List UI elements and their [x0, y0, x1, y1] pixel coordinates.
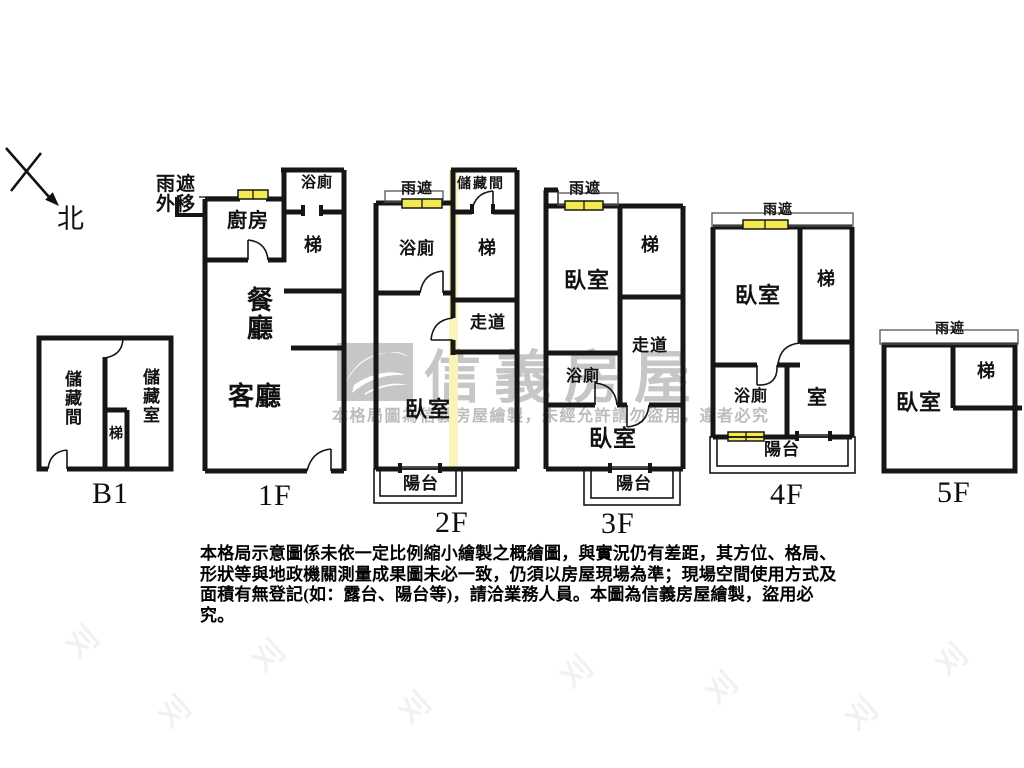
disclaimer-line-3: 面積有無登記(如：露台、陽台等)，請洽業務人員。本圖為信義房屋繪製，盜用必究。	[200, 585, 848, 626]
compass-north-label: 北	[57, 205, 85, 234]
room-label-2f-bath: 浴廁	[399, 240, 435, 258]
floor-label-3f: 3F	[601, 508, 635, 540]
room-label-2f-corridor: 走道	[470, 314, 506, 332]
room-label-3f-bedroom-bottom: 臥室	[589, 427, 637, 451]
rain-shade-label-2f: 雨遮	[401, 182, 433, 198]
disclaimer-line-2: 形狀等與地政機關測量成果圖未必一致，仍須以房屋現場為準；現場空間使用方式及	[200, 565, 848, 586]
room-label-1f-bath: 浴廁	[301, 176, 333, 192]
room-label-3f-bedroom-top: 臥室	[564, 269, 610, 292]
room-label-2f-stairs: 梯	[478, 239, 497, 258]
room-label-3f-balcony: 陽台	[616, 475, 652, 493]
room-label-1f-dining: 餐廳	[244, 286, 272, 342]
room-label-b1-storage2: 儲藏室	[140, 368, 158, 425]
floor-label-b1: B1	[92, 478, 129, 510]
room-label-2f-bedroom: 臥室	[405, 398, 451, 421]
room-label-2f-balcony: 陽台	[403, 475, 439, 493]
room-label-4f-room: 室	[807, 388, 828, 409]
rain-shade-label-5f: 雨遮	[935, 323, 965, 338]
room-label-1f-stairs: 梯	[304, 236, 323, 255]
callout-rain-shade-line2: 外移	[156, 195, 196, 215]
disclaimer-text: 本格局示意圖係未依一定比例縮小繪製之概繪圖，與實況仍有差距，其方位、格局、 形狀…	[200, 544, 848, 626]
room-label-3f-stairs: 梯	[641, 236, 660, 255]
callout-rain-shade-line1: 雨遮	[156, 175, 196, 195]
floor-label-4f: 4F	[770, 479, 804, 511]
rain-shade-label-3f: 雨遮	[569, 182, 601, 198]
floor-label-5f: 5F	[937, 477, 971, 509]
rain-shade-label-4f: 雨遮	[763, 204, 793, 219]
floor-label-1f: 1F	[258, 480, 292, 512]
floorplan-page: 刈 刈 刈 刈 刈 刈 刈 刈 信義房屋 本格局圖為信義房屋繪製，未經允許請勿盜…	[0, 0, 1024, 768]
room-label-3f-bath: 浴廁	[566, 369, 600, 386]
disclaimer-line-1: 本格局示意圖係未依一定比例縮小繪製之概繪圖，與實況仍有差距，其方位、格局、	[200, 544, 848, 565]
room-label-4f-bedroom: 臥室	[735, 284, 781, 307]
floor-1f-walls	[205, 170, 344, 471]
floor-4f-rain-shade	[712, 213, 853, 441]
room-label-5f-stairs: 梯	[977, 362, 996, 381]
room-label-4f-balcony: 陽台	[764, 441, 800, 459]
floor-b1-doors	[48, 338, 123, 469]
room-label-b1-stairs: 梯	[109, 428, 124, 443]
floor-label-2f: 2F	[435, 507, 469, 539]
compass-arrow	[6, 148, 59, 206]
room-label-1f-kitchen: 廚房	[227, 211, 269, 232]
room-label-2f-storage: 儲藏間	[457, 178, 505, 193]
room-label-b1-storage1: 儲藏間	[62, 370, 80, 427]
room-label-4f-stairs: 梯	[817, 270, 836, 289]
room-label-4f-bath: 浴廁	[734, 389, 768, 406]
floor-1f-rain-shade-bar	[238, 190, 268, 199]
room-label-1f-living: 客廳	[228, 383, 282, 411]
room-label-5f-bedroom: 臥室	[896, 391, 942, 414]
room-label-3f-corridor: 走道	[632, 337, 668, 355]
